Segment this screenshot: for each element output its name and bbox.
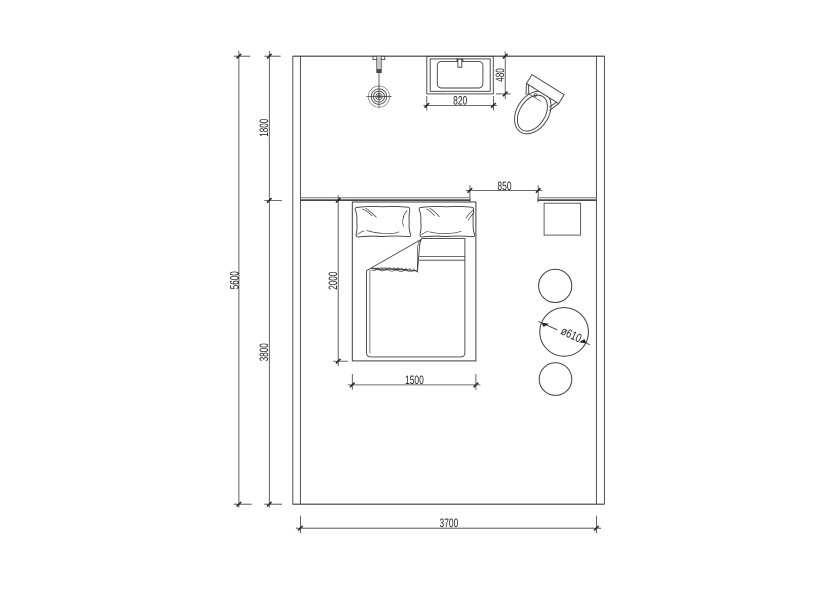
svg-text:1500: 1500 [405,373,424,387]
svg-text:3800: 3800 [257,343,271,361]
svg-text:2000: 2000 [326,272,340,290]
svg-text:820: 820 [453,94,467,108]
svg-text:1800: 1800 [257,119,271,137]
svg-text:5600: 5600 [227,271,241,289]
svg-text:3700: 3700 [440,516,459,530]
svg-text:480: 480 [493,68,507,82]
svg-text:850: 850 [497,179,511,193]
